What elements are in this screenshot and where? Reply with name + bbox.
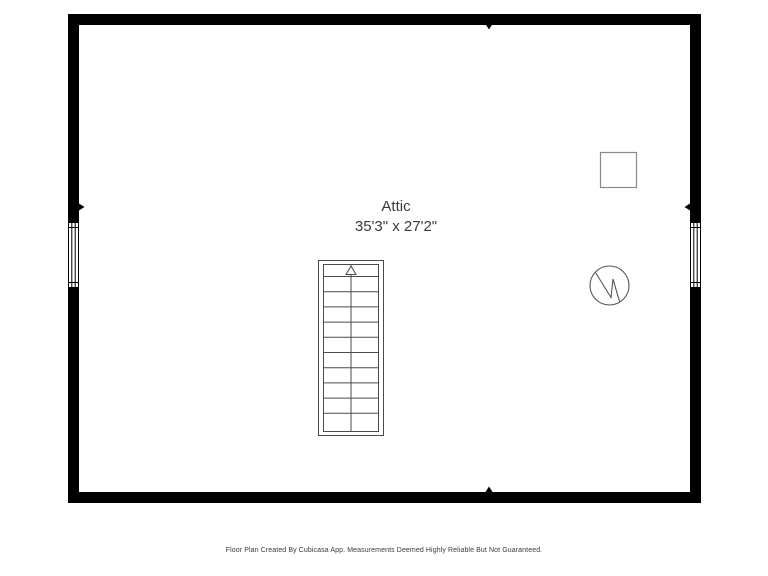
floor-plan-page: Attic 35'3" x 27'2" Floor Plan Created B… — [0, 0, 768, 576]
square-fixture-icon — [601, 153, 637, 188]
right-wall-window-icon — [691, 223, 701, 288]
circle-zigzag-fixture-icon — [590, 266, 629, 305]
left-wall-window-icon — [69, 223, 79, 288]
footer-disclaimer: Floor Plan Created By Cubicasa App. Meas… — [0, 547, 768, 554]
floor-plan-canvas — [0, 0, 768, 576]
exterior-walls — [74, 20, 696, 498]
